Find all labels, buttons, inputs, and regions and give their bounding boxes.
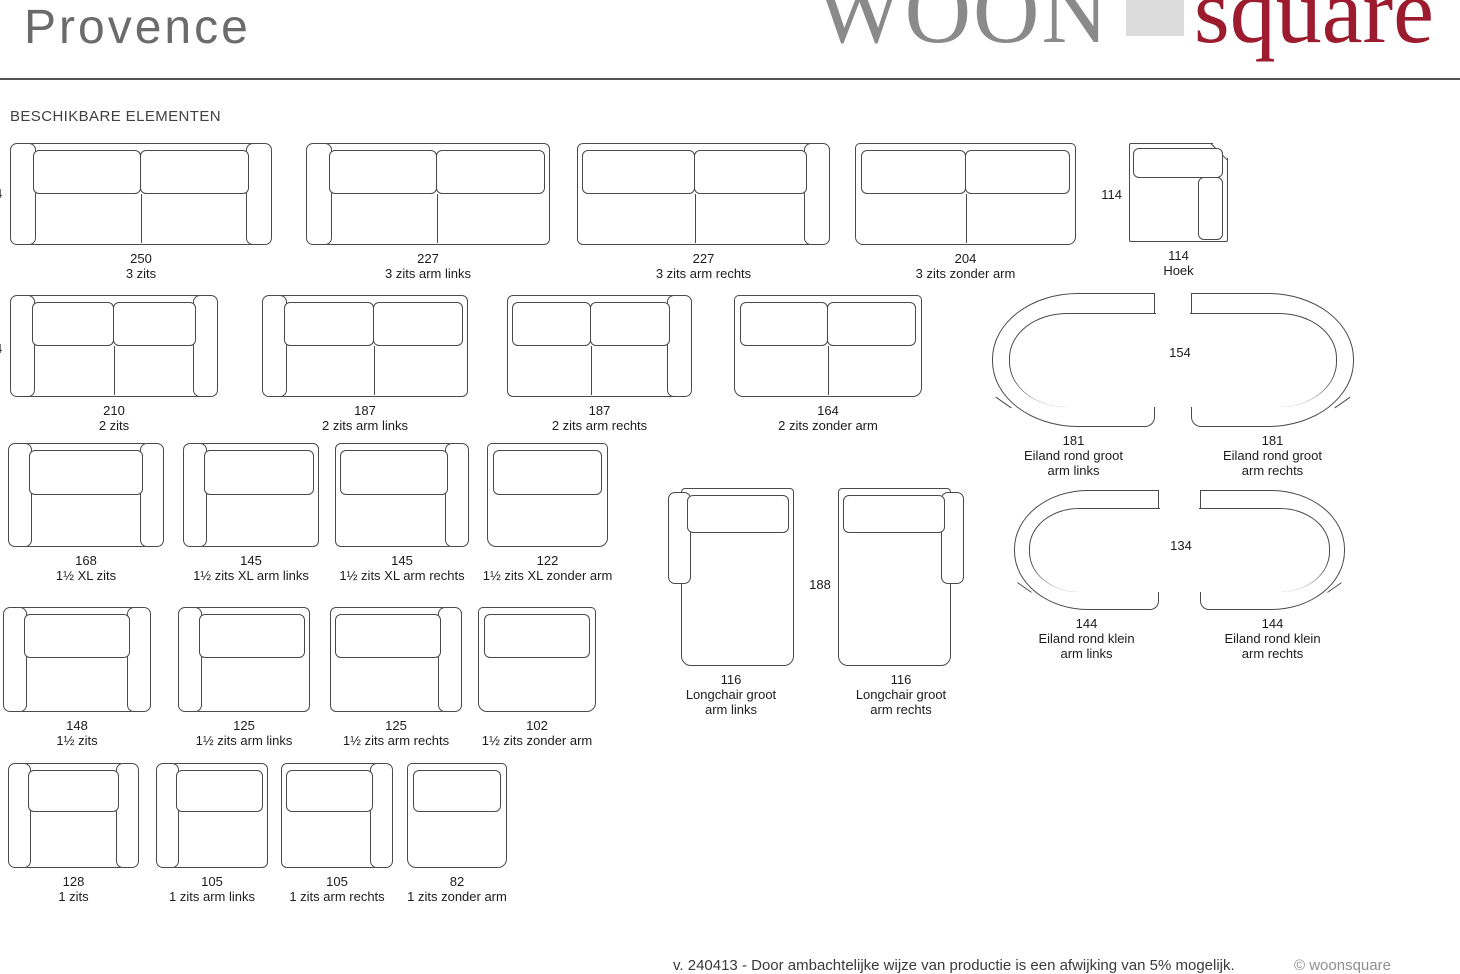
element-name: 1½ zits XL zonder arm [483, 568, 613, 583]
eiland-diagram [992, 293, 1155, 427]
element-size: 145 [339, 553, 464, 568]
seat-area [29, 450, 143, 547]
back-cushion [582, 150, 695, 194]
sofa-diagram [487, 443, 608, 547]
element-name: 1½ zits [56, 733, 97, 748]
back-cushion [140, 150, 249, 194]
element-name: 2 zits zonder arm [778, 418, 878, 433]
element-15-zits-arm-rechts: 125 1½ zits arm rechts [330, 607, 462, 748]
sofa-diagram [507, 295, 692, 397]
element-name: 1½ zits zonder arm [482, 733, 593, 748]
element-sub: arm links [1024, 463, 1123, 478]
element-hoek: 114 Hoek [1129, 143, 1228, 278]
element-size: 187 [322, 403, 408, 418]
element-size: 204 [916, 251, 1016, 266]
element-size: 82 [407, 874, 507, 889]
element-15-zits-xl-arm-links: 145 1½ zits XL arm links [183, 443, 319, 583]
eiland-back-line [1190, 313, 1337, 407]
sofa-diagram [306, 143, 550, 245]
eiland-back-line [1199, 508, 1330, 592]
eiland-diagram [1014, 490, 1159, 610]
element-label: 128 1 zits [58, 874, 88, 904]
element-name: 1 zits arm links [169, 889, 255, 904]
sofa-arm-right [140, 443, 164, 547]
element-name: Eiland rond klein [1038, 631, 1134, 646]
seat-divider [114, 346, 115, 395]
seat-divider [374, 346, 375, 395]
element-size: 145 [193, 553, 309, 568]
element-size: 181 [1024, 433, 1123, 448]
back-cushion [590, 302, 670, 346]
element-1-zits-arm-links: 105 1 zits arm links [156, 763, 268, 904]
sofa-diagram [262, 295, 468, 397]
seat-area [284, 302, 463, 397]
element-name: 2 zits arm links [322, 418, 408, 433]
element-label: 250 3 zits [126, 251, 156, 281]
logo-text-woon: WOON [816, 0, 1110, 62]
sofa-arm-right [438, 607, 462, 712]
sofa-diagram [10, 295, 218, 397]
seat-area [33, 150, 249, 245]
seat-divider [966, 194, 967, 243]
sofa-diagram [178, 607, 310, 712]
element-15-xl-zits: 168 1½ XL zits [8, 443, 164, 583]
back-cushion [24, 614, 130, 658]
header-divider [0, 78, 1460, 80]
element-1-zits-zonder-arm: 82 1 zits zonder arm [407, 763, 507, 904]
back-cushion [687, 495, 789, 533]
sofa-diagram [478, 607, 596, 712]
back-cushion [436, 150, 545, 194]
hoek-diagram [1129, 143, 1228, 242]
element-eiland-rond-klein-arm-rechts: 144 Eiland rond klein arm rechts [1200, 490, 1345, 661]
element-label: 122 1½ zits XL zonder arm [483, 553, 613, 583]
footer-copyright: © woonsquare [1294, 957, 1391, 974]
logo-square-icon [1126, 0, 1184, 36]
eiland-diagram [1191, 293, 1354, 427]
element-size: 125 [343, 718, 449, 733]
element-label: 210 2 zits [99, 403, 129, 433]
element-name: 1 zits arm rechts [289, 889, 384, 904]
element-name: 3 zits [126, 266, 156, 281]
sofa-diagram [3, 607, 151, 712]
seat-divider [695, 194, 696, 243]
element-size: 227 [656, 251, 751, 266]
element-15-zits-arm-links: 125 1½ zits arm links [178, 607, 310, 748]
element-name: 1 zits zonder arm [407, 889, 507, 904]
element-2-zits-zonder-arm: 164 2 zits zonder arm [734, 295, 922, 433]
element-size: 187 [552, 403, 647, 418]
back-cushion [286, 770, 373, 812]
element-name: 1½ zits arm rechts [343, 733, 449, 748]
seat-area [286, 770, 373, 868]
sofa-diagram [407, 763, 507, 868]
seat-area [861, 150, 1070, 245]
element-size: 114 [1163, 248, 1193, 263]
element-label: 164 2 zits zonder arm [778, 403, 878, 433]
element-1-zits-arm-rechts: 105 1 zits arm rechts [281, 763, 393, 904]
element-size: 144 [1224, 616, 1320, 631]
element-label: 187 2 zits arm rechts [552, 403, 647, 433]
element-name: Longchair groot [856, 687, 946, 702]
element-size: 164 [778, 403, 878, 418]
element-name: Longchair groot [686, 687, 776, 702]
element-label: 102 1½ zits zonder arm [482, 718, 593, 748]
seat-divider [141, 194, 142, 243]
back-cushion [32, 302, 114, 346]
sofa-arm-right [370, 763, 393, 868]
element-label: 125 1½ zits arm rechts [343, 718, 449, 748]
sofa-arm-right [246, 143, 272, 245]
element-15-zits-zonder-arm: 102 1½ zits zonder arm [478, 607, 596, 748]
sofa-arm-right [127, 607, 151, 712]
dimension-label-longchair: 188 [802, 577, 838, 592]
sofa-diagram [8, 443, 164, 547]
longchair-diagram [668, 488, 794, 666]
dimension-label-hoek-side: 114 [1088, 187, 1122, 202]
sofa-arm-right [445, 443, 469, 547]
back-cushion [512, 302, 591, 346]
element-label: 105 1 zits arm links [169, 874, 255, 904]
element-name: Hoek [1163, 263, 1193, 278]
element-size: 144 [1038, 616, 1134, 631]
back-cushion [740, 302, 828, 346]
element-longchair-groot-arm-rechts: 116 Longchair groot arm rechts [838, 488, 964, 717]
element-name: 1½ zits XL arm links [193, 568, 309, 583]
seat-area [335, 614, 441, 712]
element-label: 82 1 zits zonder arm [407, 874, 507, 904]
back-cushion [340, 450, 448, 495]
back-cushion [965, 150, 1071, 194]
element-size: 250 [126, 251, 156, 266]
back-cushion [176, 770, 263, 812]
seat-area [413, 770, 501, 868]
sofa-diagram [183, 443, 319, 547]
element-sub: arm links [1038, 646, 1134, 661]
element-eiland-rond-klein-arm-links: 144 Eiland rond klein arm links [1014, 490, 1159, 661]
element-sub: arm rechts [1224, 646, 1320, 661]
sofa-diagram [281, 763, 393, 868]
seat-area [340, 450, 448, 547]
element-size: 210 [99, 403, 129, 418]
eiland-diagram [1200, 490, 1345, 610]
element-size: 128 [58, 874, 88, 889]
back-cushion [33, 150, 141, 194]
element-name: 1 zits [58, 889, 88, 904]
back-cushion [373, 302, 464, 346]
sofa-diagram [855, 143, 1076, 245]
back-cushion [694, 150, 808, 194]
section-heading: BESCHIKBARE ELEMENTEN [10, 108, 221, 125]
element-sub: arm links [686, 702, 776, 717]
back-cushion [28, 770, 119, 812]
element-label: 181 Eiland rond groot arm links [1024, 433, 1123, 478]
element-label: 125 1½ zits arm links [196, 718, 293, 748]
longchair-diagram [838, 488, 964, 666]
sofa-diagram [10, 143, 272, 245]
element-3-zits-zonder-arm: 204 3 zits zonder arm [855, 143, 1076, 281]
element-label: 227 3 zits arm rechts [656, 251, 751, 281]
element-size: 122 [483, 553, 613, 568]
logo-text-square: square [1194, 0, 1434, 62]
element-3-zits: 250 3 zits [10, 143, 272, 281]
back-cushion [29, 450, 143, 495]
seat-area [512, 302, 670, 397]
element-name: Eiland rond groot [1223, 448, 1322, 463]
element-size: 125 [196, 718, 293, 733]
element-eiland-rond-groot-arm-rechts: 181 Eiland rond groot arm rechts [1191, 293, 1354, 478]
element-label: 145 1½ zits XL arm links [193, 553, 309, 583]
sofa-arm-right [193, 295, 218, 397]
element-name: 2 zits [99, 418, 129, 433]
sofa-diagram [577, 143, 830, 245]
seat-area [32, 302, 196, 397]
element-label: 114 Hoek [1163, 248, 1193, 278]
element-label: 145 1½ zits XL arm rechts [339, 553, 464, 583]
element-name: 3 zits zonder arm [916, 266, 1016, 281]
back-cushion [199, 614, 305, 658]
element-name: 1½ zits arm links [196, 733, 293, 748]
seat-area [484, 614, 590, 712]
sofa-arm-right [667, 295, 692, 397]
element-label: 168 1½ XL zits [56, 553, 116, 583]
element-name: 1½ XL zits [56, 568, 116, 583]
sofa-diagram [734, 295, 922, 397]
element-2-zits-arm-links: 187 2 zits arm links [262, 295, 468, 433]
sofa-diagram [8, 763, 139, 868]
element-size: 102 [482, 718, 593, 733]
element-3-zits-arm-rechts: 227 3 zits arm rechts [577, 143, 830, 281]
element-name: Eiland rond groot [1024, 448, 1123, 463]
element-name: Eiland rond klein [1224, 631, 1320, 646]
element-size: 168 [56, 553, 116, 568]
element-label: 116 Longchair groot arm rechts [856, 672, 946, 717]
element-sub: arm rechts [1223, 463, 1322, 478]
eiland-back-line [1029, 508, 1160, 592]
footer-note: v. 240413 - Door ambachtelijke wijze van… [673, 957, 1235, 974]
back-cushion [284, 302, 374, 346]
seat-area [24, 614, 130, 712]
sofa-diagram [330, 607, 462, 712]
back-cushion [329, 150, 437, 194]
element-label: 148 1½ zits [56, 718, 97, 748]
seat-area [28, 770, 119, 868]
back-cushion [493, 450, 602, 495]
side-back-cushion [1198, 177, 1223, 240]
element-size: 116 [686, 672, 776, 687]
element-2-zits-arm-rechts: 187 2 zits arm rechts [507, 295, 692, 433]
sofa-diagram [335, 443, 469, 547]
seat-area [176, 770, 263, 868]
seat-area [582, 150, 807, 245]
element-size: 105 [289, 874, 384, 889]
page-title: Provence [24, 0, 251, 55]
back-cushion [113, 302, 196, 346]
seat-divider [828, 346, 829, 395]
element-eiland-rond-groot-arm-links: 181 Eiland rond groot arm links [992, 293, 1155, 478]
sofa-arm-right [116, 763, 139, 868]
element-longchair-groot-arm-links: 116 Longchair groot arm links [668, 488, 794, 717]
element-label: 144 Eiland rond klein arm links [1038, 616, 1134, 661]
element-15-zits-xl-arm-rechts: 145 1½ zits XL arm rechts [335, 443, 469, 583]
clipped-dimension-row1: 4 [0, 186, 2, 201]
element-3-zits-arm-links: 227 3 zits arm links [306, 143, 550, 281]
element-label: 204 3 zits zonder arm [916, 251, 1016, 281]
element-size: 227 [385, 251, 471, 266]
seat-divider [591, 346, 592, 395]
element-name: 1½ zits XL arm rechts [339, 568, 464, 583]
woonsquare-logo: WOONsquare [816, 0, 1434, 57]
element-name: 2 zits arm rechts [552, 418, 647, 433]
sofa-diagram [156, 763, 268, 868]
clipped-dimension-row2: 4 [0, 341, 2, 356]
element-size: 148 [56, 718, 97, 733]
seat-area [204, 450, 314, 547]
seat-area [329, 150, 545, 245]
element-label: 187 2 zits arm links [322, 403, 408, 433]
element-label: 116 Longchair groot arm links [686, 672, 776, 717]
back-cushion [335, 614, 441, 658]
element-label: 227 3 zits arm links [385, 251, 471, 281]
back-cushion [1133, 148, 1223, 178]
element-15-zits-xl-zonder-arm: 122 1½ zits XL zonder arm [487, 443, 608, 583]
sofa-arm-right [804, 143, 830, 245]
element-name: 3 zits arm links [385, 266, 471, 281]
element-1-zits: 128 1 zits [8, 763, 139, 904]
seat-area [740, 302, 916, 397]
back-cushion [204, 450, 314, 495]
seat-area [199, 614, 305, 712]
back-cushion [484, 614, 590, 658]
element-sub: arm rechts [856, 702, 946, 717]
element-size: 105 [169, 874, 255, 889]
element-size: 116 [856, 672, 946, 687]
element-label: 105 1 zits arm rechts [289, 874, 384, 904]
element-size: 181 [1223, 433, 1322, 448]
element-label: 144 Eiland rond klein arm rechts [1224, 616, 1320, 661]
eiland-back-line [1009, 313, 1156, 407]
back-cushion [861, 150, 966, 194]
provence-element-sheet: { "title": "Provence", "logo": {"woon": … [0, 0, 1460, 974]
element-15-zits: 148 1½ zits [3, 607, 151, 748]
dimension-label-eiland-klein: 134 [1163, 538, 1199, 553]
element-2-zits: 210 2 zits [10, 295, 218, 433]
element-name: 3 zits arm rechts [656, 266, 751, 281]
back-cushion [413, 770, 501, 812]
seat-area [493, 450, 602, 547]
back-cushion [827, 302, 916, 346]
back-cushion [843, 495, 945, 533]
element-label: 181 Eiland rond groot arm rechts [1223, 433, 1322, 478]
seat-divider [437, 194, 438, 243]
